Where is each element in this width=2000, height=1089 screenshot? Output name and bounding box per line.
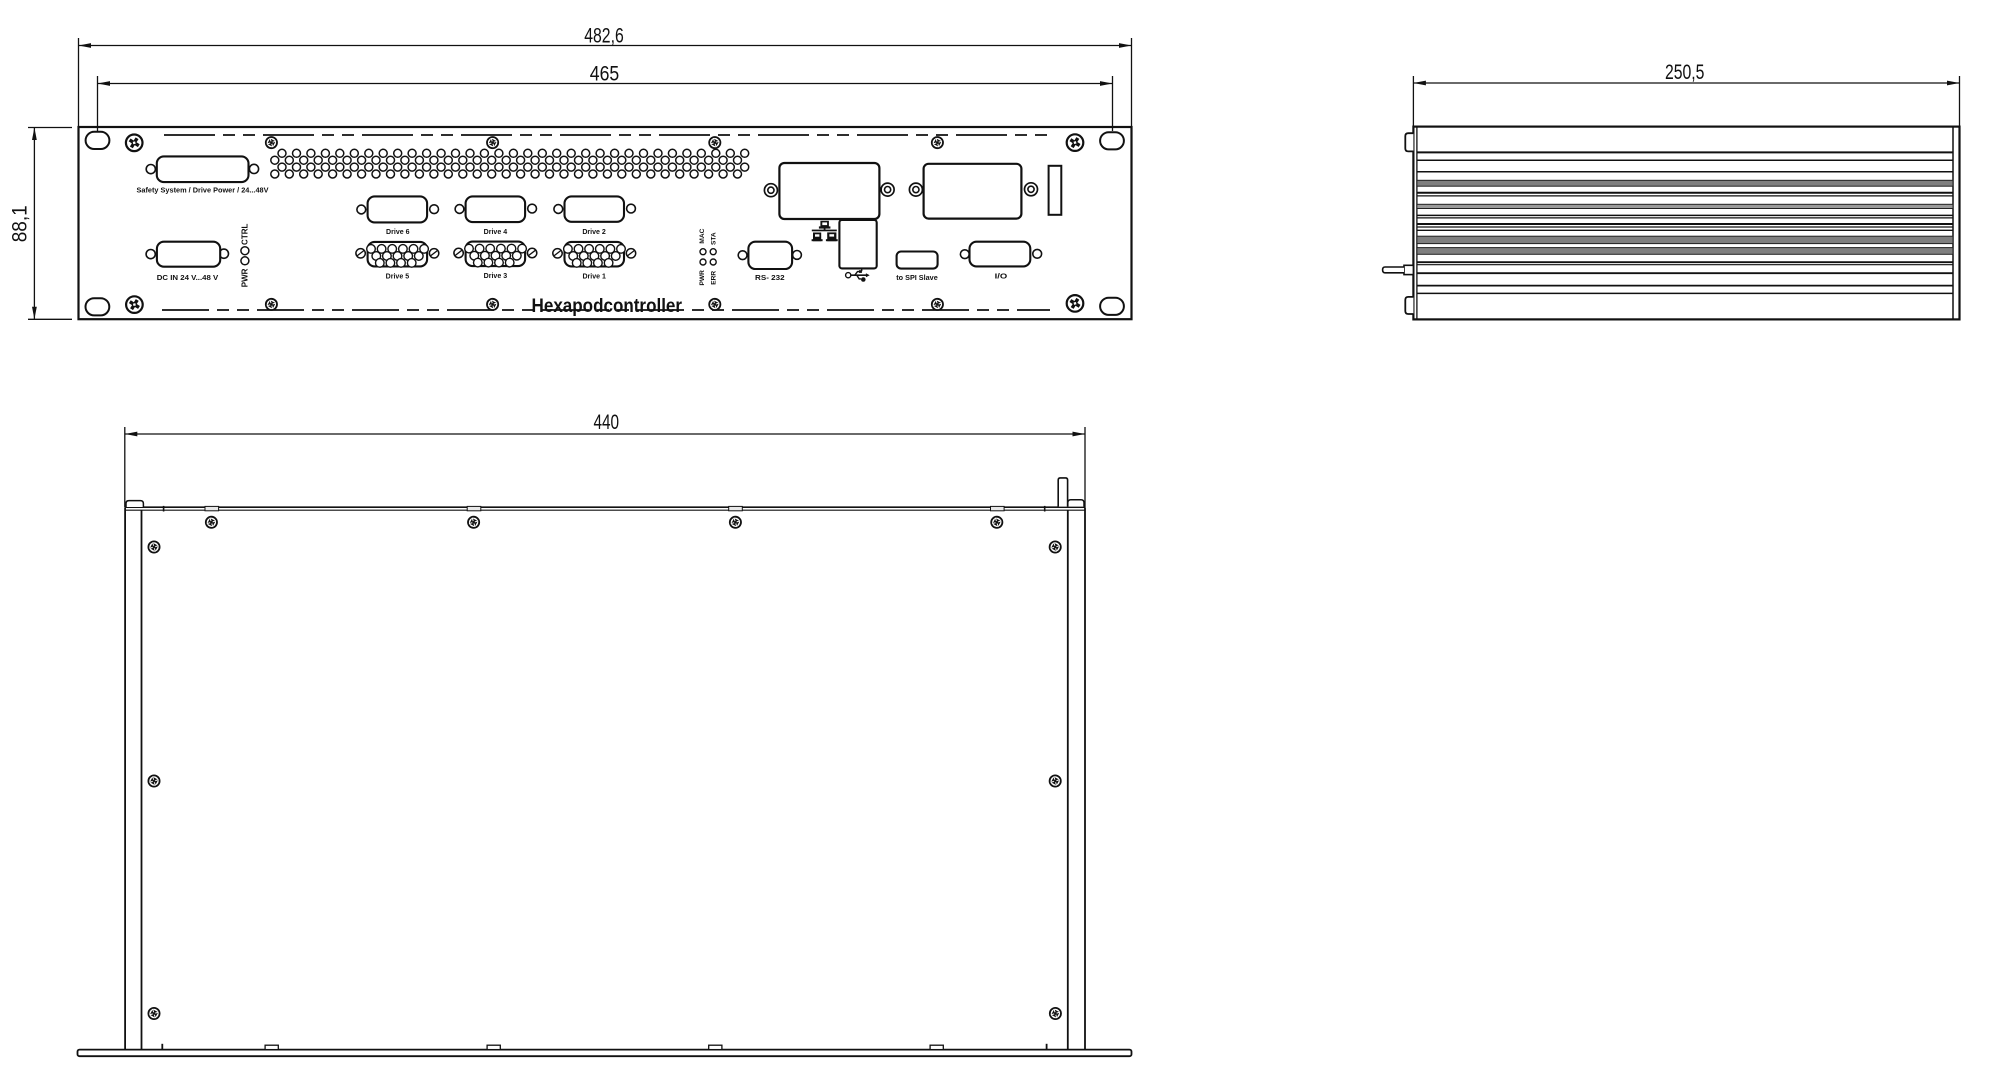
svg-text:ERR: ERR [710, 271, 717, 285]
svg-text:482,6: 482,6 [584, 25, 624, 48]
svg-text:DC IN 24 V...48 V: DC IN 24 V...48 V [157, 273, 219, 282]
svg-text:RS- 232: RS- 232 [755, 273, 785, 282]
svg-text:465: 465 [590, 63, 620, 86]
svg-text:Drive 2: Drive 2 [582, 227, 606, 236]
svg-text:STA: STA [710, 232, 717, 245]
svg-text:Drive 6: Drive 6 [386, 227, 410, 236]
svg-text:440: 440 [594, 411, 620, 434]
svg-text:Drive 3: Drive 3 [484, 271, 508, 280]
svg-text:MAC: MAC [699, 228, 706, 243]
svg-text:Hexapodcontroller: Hexapodcontroller [532, 295, 683, 317]
svg-text:CTRL: CTRL [240, 224, 249, 245]
svg-text:I/O: I/O [995, 272, 1008, 281]
svg-text:PWR: PWR [240, 268, 249, 287]
svg-text:Safety System / Drive Power /: Safety System / Drive Power / 24...48V [137, 185, 270, 194]
svg-text:Drive 5: Drive 5 [386, 272, 410, 281]
svg-text:PWR: PWR [699, 270, 706, 286]
svg-text:Drive 4: Drive 4 [484, 227, 508, 236]
svg-text:250,5: 250,5 [1665, 61, 1705, 84]
svg-text:88,1: 88,1 [9, 205, 32, 242]
svg-text:to SPI Slave: to SPI Slave [896, 273, 938, 282]
svg-text:Drive 1: Drive 1 [582, 272, 606, 281]
